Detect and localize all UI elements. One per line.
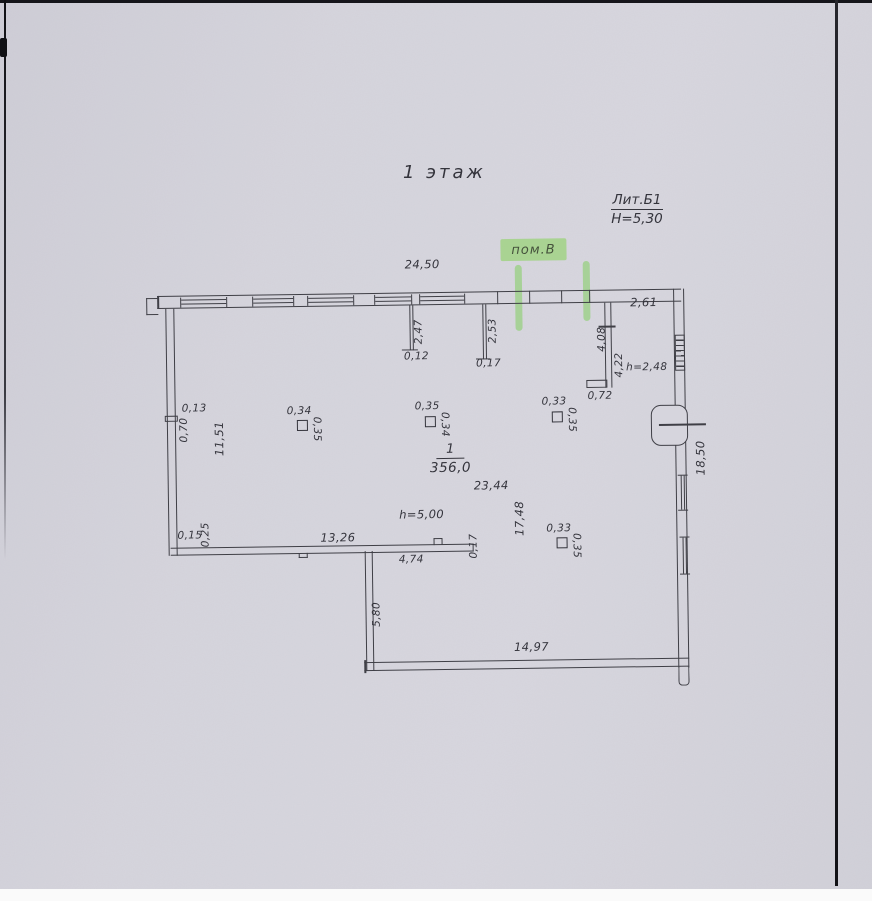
floor-title: 1 этаж	[403, 162, 486, 183]
dim-vestibule-height: h=2,48	[626, 361, 667, 374]
wall-bottom	[364, 658, 689, 672]
dim-left-notch-len: 0,70	[178, 418, 190, 443]
dim-room-width: 17,48	[513, 501, 525, 536]
dim-bottom-wall-len: 14,97	[514, 641, 549, 653]
wall-top-divider-4	[589, 290, 590, 303]
scan-edge-left	[4, 0, 6, 560]
column-2	[425, 416, 436, 427]
scan-edge-right	[835, 0, 838, 886]
premise-highlight-label: пом.В	[500, 238, 566, 261]
window-top-2	[252, 296, 294, 307]
window-top-1	[180, 296, 227, 307]
window-top-5	[419, 293, 465, 304]
column-1	[297, 420, 308, 431]
liter-block: Лит.Б1 H=5,30	[606, 192, 668, 227]
window-top-3	[307, 295, 354, 306]
column-4-size-top: 0,33	[546, 522, 571, 534]
dim-partition2-len: 2,53	[486, 318, 498, 343]
wall-top-divider-3	[561, 290, 562, 303]
dim-bottom-mid-thk: 0,17	[467, 533, 479, 558]
dim-left-wall-len: 11,51	[213, 421, 225, 456]
scan-edge-bottom	[0, 889, 872, 901]
wall-bottom-left-cap	[364, 660, 366, 673]
column-3-size-side: 0,35	[566, 407, 578, 432]
room-number: 1	[436, 442, 465, 459]
wall-left-notch	[165, 416, 178, 422]
window-top-4	[374, 294, 412, 305]
room-area: 356,0	[427, 459, 473, 477]
wall-bottom-left-seam-1	[299, 553, 308, 558]
column-2-size-side: 0,34	[439, 412, 451, 437]
building-height-label: H=5,30	[606, 210, 668, 227]
column-3-size-top: 0,33	[542, 395, 567, 407]
wall-bottom-left	[171, 544, 474, 556]
dim-top-width: 24,50	[405, 258, 440, 270]
dim-partition3-end: 0,72	[587, 390, 612, 402]
column-3	[552, 411, 563, 422]
scan-edge-top	[0, 0, 872, 3]
column-4	[557, 537, 568, 548]
window-right-1	[675, 335, 686, 371]
dim-bottom-left-len: 13,26	[320, 531, 355, 543]
dim-right-wall-len: 18,50	[694, 440, 706, 475]
dim-room-height: h=5,00	[399, 508, 444, 521]
dim-partition3-len-upper: 4,08	[596, 327, 608, 352]
entrance-door-swing-line	[659, 423, 706, 425]
wall-top-divider-1	[497, 291, 498, 304]
premise-label-text: пом.В	[511, 242, 556, 258]
dim-partition3-len: 4,22	[613, 352, 625, 377]
dim-sw-corner-b: 0,25	[199, 522, 211, 547]
dim-room-length: 23,44	[474, 479, 509, 491]
dim-partition2-thk: 0,17	[476, 357, 501, 369]
wall-left	[165, 309, 177, 556]
wall-left-pilaster	[146, 298, 158, 315]
column-2-size-top: 0,35	[415, 400, 440, 412]
dim-corner-top: 2,61	[630, 296, 657, 308]
room-number-area: 1 356,0	[427, 442, 473, 477]
scan-ink-blob	[0, 38, 7, 57]
window-right-2	[678, 475, 689, 511]
dim-annex-wall-len: 5,80	[370, 602, 382, 627]
dim-partition1-len: 2,47	[412, 319, 424, 344]
scanned-floor-plan-page: { "document": { "floor_title": "1 этаж",…	[0, 0, 872, 901]
dim-bottom-mid-len: 4,74	[399, 553, 424, 565]
wall-top-divider-2	[529, 291, 530, 304]
wall-bottom-left-seam-2	[434, 538, 443, 545]
column-4-size-side: 0,35	[570, 533, 582, 558]
window-right-3	[680, 537, 691, 575]
dim-left-notch-depth: 0,13	[182, 402, 207, 414]
partition-3-foot	[586, 380, 607, 388]
floor-plan-drawing: пом.В 1 356,0 24,50 0,12 0	[149, 268, 735, 736]
column-1-size-side: 0,35	[311, 417, 323, 442]
column-1-size-top: 0,34	[287, 405, 312, 417]
dim-partition1-thk: 0,12	[404, 350, 429, 362]
liter-label: Лит.Б1	[611, 192, 664, 210]
wall-right-footing	[678, 667, 689, 686]
